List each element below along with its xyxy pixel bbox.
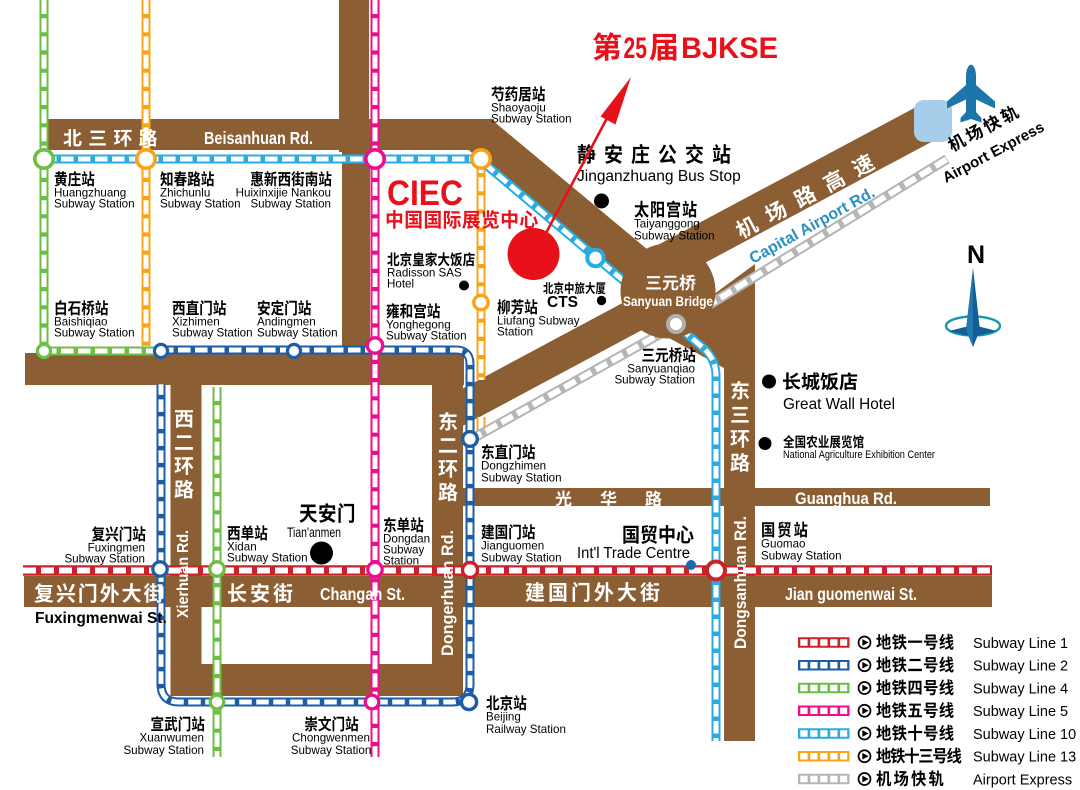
svg-text:Fuxingmenwai St.: Fuxingmenwai St. bbox=[35, 610, 167, 627]
svg-text:Subway Station: Subway Station bbox=[291, 744, 372, 757]
svg-text:Subway Line 2: Subway Line 2 bbox=[973, 659, 1068, 675]
svg-text:Station: Station bbox=[383, 555, 419, 568]
svg-text:25: 25 bbox=[624, 32, 648, 65]
svg-text:Subway Station: Subway Station bbox=[64, 553, 145, 566]
svg-text:Subway Line 5: Subway Line 5 bbox=[973, 704, 1068, 720]
svg-text:Beijing: Beijing bbox=[486, 711, 521, 724]
svg-text:Subway Line 4: Subway Line 4 bbox=[973, 681, 1068, 697]
svg-text:Dongsanhuan Rd.: Dongsanhuan Rd. bbox=[732, 516, 750, 649]
svg-text:Int'l Trade Centre: Int'l Trade Centre bbox=[577, 545, 690, 562]
svg-text:Subway Station: Subway Station bbox=[227, 552, 308, 565]
svg-text:Jian guomenwai St.: Jian guomenwai St. bbox=[785, 584, 917, 604]
svg-text:BJKSE: BJKSE bbox=[681, 32, 778, 65]
svg-text:Subway Station: Subway Station bbox=[250, 198, 331, 211]
svg-text:Subway Station: Subway Station bbox=[123, 744, 204, 757]
svg-text:National Agriculture Exhibitio: National Agriculture Exhibition Center bbox=[783, 449, 935, 461]
svg-text:Subway Station: Subway Station bbox=[160, 198, 241, 211]
svg-text:Subway Station: Subway Station bbox=[491, 113, 572, 126]
svg-text:Subway Station: Subway Station bbox=[172, 327, 253, 340]
svg-text:Sanyuan Bridge: Sanyuan Bridge bbox=[623, 294, 713, 309]
svg-text:Subway Station: Subway Station bbox=[761, 550, 842, 563]
svg-text:Subway Station: Subway Station bbox=[634, 230, 715, 243]
svg-text:N: N bbox=[967, 241, 985, 269]
svg-text:Subway Station: Subway Station bbox=[257, 327, 338, 340]
svg-text:Subway Line 1: Subway Line 1 bbox=[973, 636, 1068, 652]
svg-text:Airport Express: Airport Express bbox=[973, 772, 1072, 788]
svg-text:Railway Station: Railway Station bbox=[486, 723, 566, 736]
svg-text:Beisanhuan Rd.: Beisanhuan Rd. bbox=[204, 128, 313, 148]
svg-text:Jinganzhuang Bus Stop: Jinganzhuang Bus Stop bbox=[577, 168, 741, 185]
svg-text:Tian'anmen: Tian'anmen bbox=[287, 524, 341, 540]
svg-text:Xierhuan Rd.: Xierhuan Rd. bbox=[175, 530, 192, 618]
svg-text:Subway Station: Subway Station bbox=[386, 330, 467, 343]
svg-text:Subway Station: Subway Station bbox=[481, 552, 562, 565]
svg-text:Dongerhuan Rd.: Dongerhuan Rd. bbox=[439, 530, 457, 656]
svg-text:Station: Station bbox=[497, 326, 533, 339]
svg-text:Hotel: Hotel bbox=[387, 278, 414, 291]
svg-text:Changan St.: Changan St. bbox=[320, 584, 405, 604]
svg-text:CTS: CTS bbox=[547, 294, 578, 311]
svg-text:Subway Station: Subway Station bbox=[481, 472, 562, 485]
svg-text:Chongwenmen: Chongwenmen bbox=[292, 732, 370, 745]
svg-text:Subway Station: Subway Station bbox=[54, 327, 135, 340]
svg-text:Subway Station: Subway Station bbox=[54, 198, 135, 211]
svg-text:Great Wall Hotel: Great Wall Hotel bbox=[783, 396, 895, 413]
svg-text:Guanghua Rd.: Guanghua Rd. bbox=[795, 489, 897, 508]
svg-text:Subway Line 13: Subway Line 13 bbox=[973, 750, 1076, 766]
svg-text:CIEC: CIEC bbox=[387, 174, 463, 213]
svg-text:Subway Line 10: Subway Line 10 bbox=[973, 727, 1076, 743]
svg-text:Subway Station: Subway Station bbox=[614, 374, 695, 387]
svg-text:Xuanwumen: Xuanwumen bbox=[140, 732, 204, 745]
